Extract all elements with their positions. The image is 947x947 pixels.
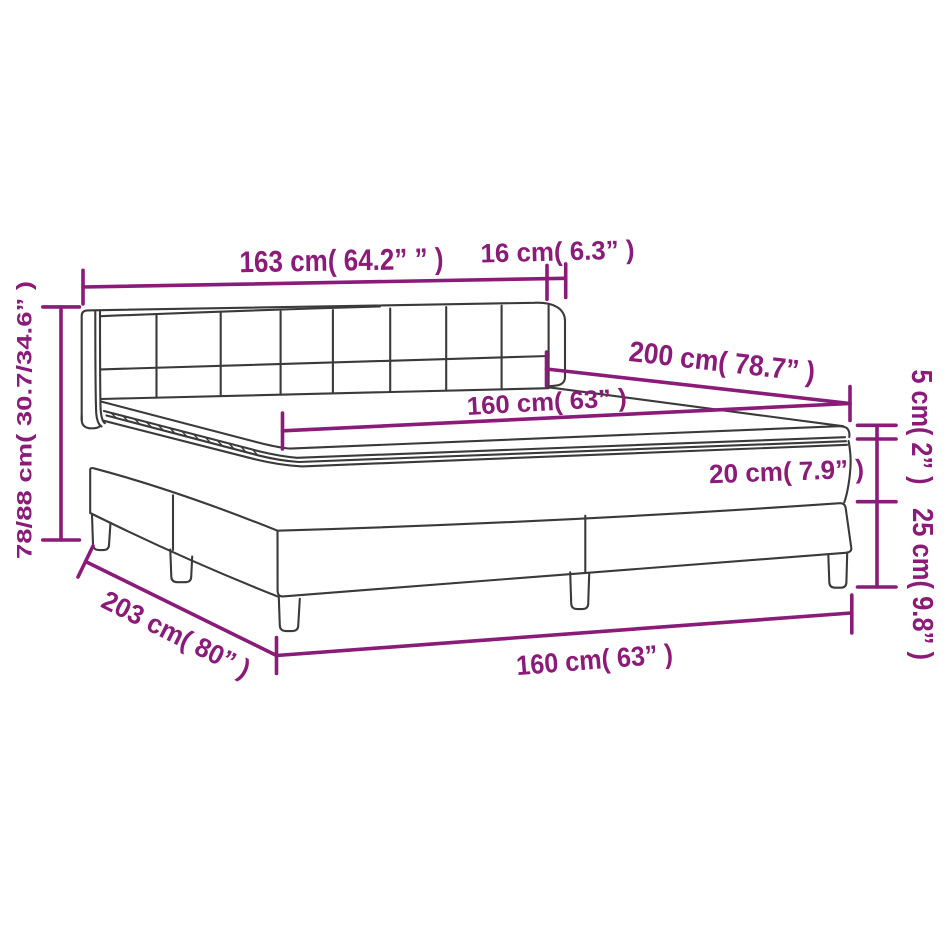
svg-text:78/88 cm( 30.7/34.6” ): 78/88 cm( 30.7/34.6” ) (13, 281, 37, 559)
svg-text:16 cm( 6.3” ): 16 cm( 6.3” ) (480, 234, 635, 268)
svg-text:5 cm( 2” ): 5 cm( 2” ) (905, 370, 937, 485)
svg-text:25 cm( 9.8” ): 25 cm( 9.8” ) (906, 508, 938, 660)
svg-text:20 cm( 7.9” ): 20 cm( 7.9” ) (709, 454, 865, 489)
svg-text:163 cm( 64.2” ” ): 163 cm( 64.2” ” ) (239, 243, 444, 280)
